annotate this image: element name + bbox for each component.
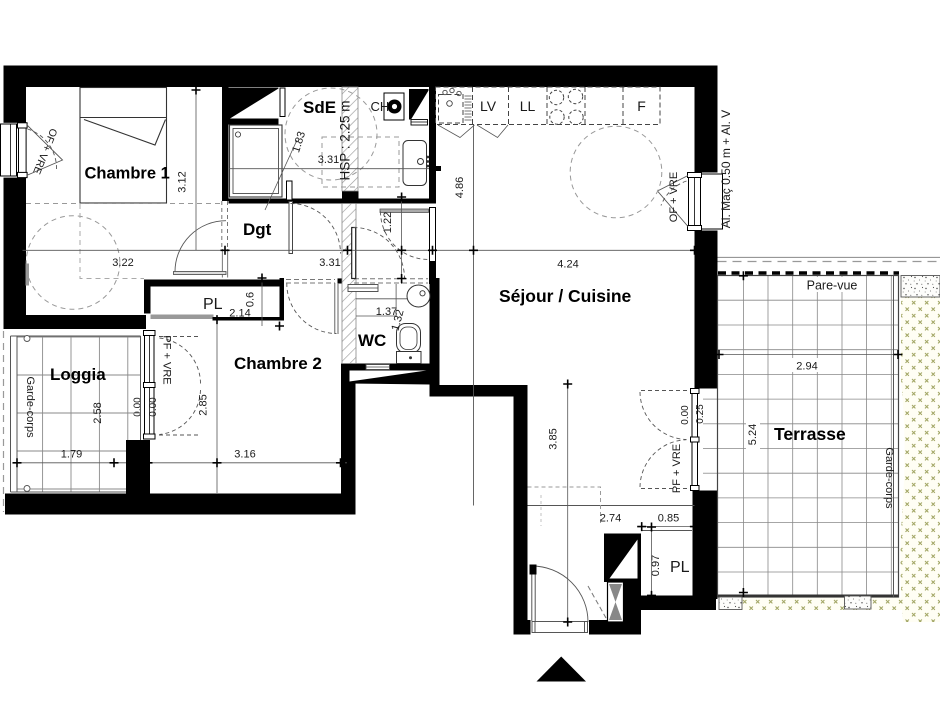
svg-text:F: F [637,98,646,114]
svg-text:0.00: 0.00 [148,397,159,417]
svg-text:2.58: 2.58 [92,402,104,423]
svg-text:CH: CH [371,99,390,114]
svg-text:WC: WC [358,331,386,350]
svg-text:3.85: 3.85 [548,428,560,449]
svg-text:2.85: 2.85 [198,394,210,415]
svg-text:Garde-corps: Garde-corps [24,376,36,438]
svg-text:1.22: 1.22 [382,212,394,233]
svg-text:3.31: 3.31 [318,154,339,166]
svg-text:0.25: 0.25 [695,404,706,424]
svg-text:LL: LL [520,98,536,114]
svg-text:Terrasse: Terrasse [774,424,846,444]
svg-text:1.79: 1.79 [61,449,82,461]
svg-text:PL: PL [670,559,690,576]
svg-text:4.86: 4.86 [454,177,466,198]
svg-text:SdE: SdE [303,98,336,117]
svg-text:Garde-corps: Garde-corps [883,447,895,509]
svg-text:PF + VRE: PF + VRE [671,444,683,493]
svg-text:Pare-vue: Pare-vue [807,279,858,293]
svg-text:2.14: 2.14 [229,308,250,320]
svg-text:3.12: 3.12 [177,171,189,192]
svg-text:3.22: 3.22 [112,257,133,269]
svg-text:2.74: 2.74 [600,513,621,525]
svg-text:2.94: 2.94 [796,361,817,373]
svg-text:3.31: 3.31 [319,257,340,269]
svg-text:Loggia: Loggia [50,365,106,384]
svg-text:0.00: 0.00 [133,397,144,417]
svg-text:5.24: 5.24 [747,424,759,445]
svg-text:0.85: 0.85 [658,513,679,525]
svg-text:3.16: 3.16 [234,449,255,461]
svg-text:HSP : 2.25 m: HSP : 2.25 m [338,100,353,180]
svg-text:OF + VRE: OF + VRE [668,172,680,222]
svg-text:Chambre 1: Chambre 1 [85,165,170,183]
svg-text:PF + VRE: PF + VRE [161,335,173,384]
svg-text:Chambre 2: Chambre 2 [234,354,322,373]
svg-text:Al. Maç 0.50 m + Al. V: Al. Maç 0.50 m + Al. V [719,110,733,228]
svg-text:PL: PL [203,296,223,313]
svg-text:Dgt: Dgt [243,220,272,239]
svg-text:Séjour / Cuisine: Séjour / Cuisine [499,286,632,306]
svg-text:LV: LV [480,98,497,114]
svg-text:0.6: 0.6 [245,292,257,307]
svg-text:0.00: 0.00 [680,405,691,425]
svg-text:4.24: 4.24 [557,259,578,271]
